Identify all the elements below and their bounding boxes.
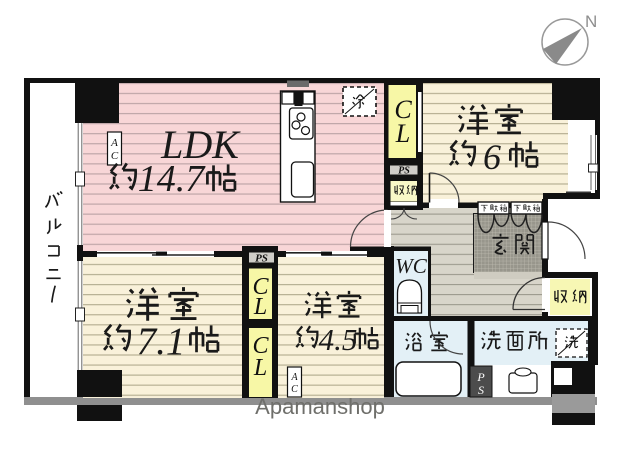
svg-text:4.5: 4.5 [319,322,358,357]
svg-text:14.7: 14.7 [138,158,207,200]
svg-text:C: C [111,150,119,162]
svg-text:A: A [110,137,118,149]
svg-text:6: 6 [483,137,501,177]
svg-text:A: A [290,372,298,383]
svg-text:7.1: 7.1 [137,320,186,363]
svg-text:PS: PS [255,253,268,265]
svg-text:S: S [478,383,484,397]
svg-text:L: L [395,119,410,148]
svg-text:P: P [476,370,485,384]
svg-text:WC: WC [395,254,427,278]
svg-text:L: L [253,294,267,320]
svg-text:L: L [253,355,267,381]
svg-text:Apamanshop: Apamanshop [255,394,385,419]
svg-text:PS: PS [398,166,410,177]
svg-text:N: N [585,12,597,31]
